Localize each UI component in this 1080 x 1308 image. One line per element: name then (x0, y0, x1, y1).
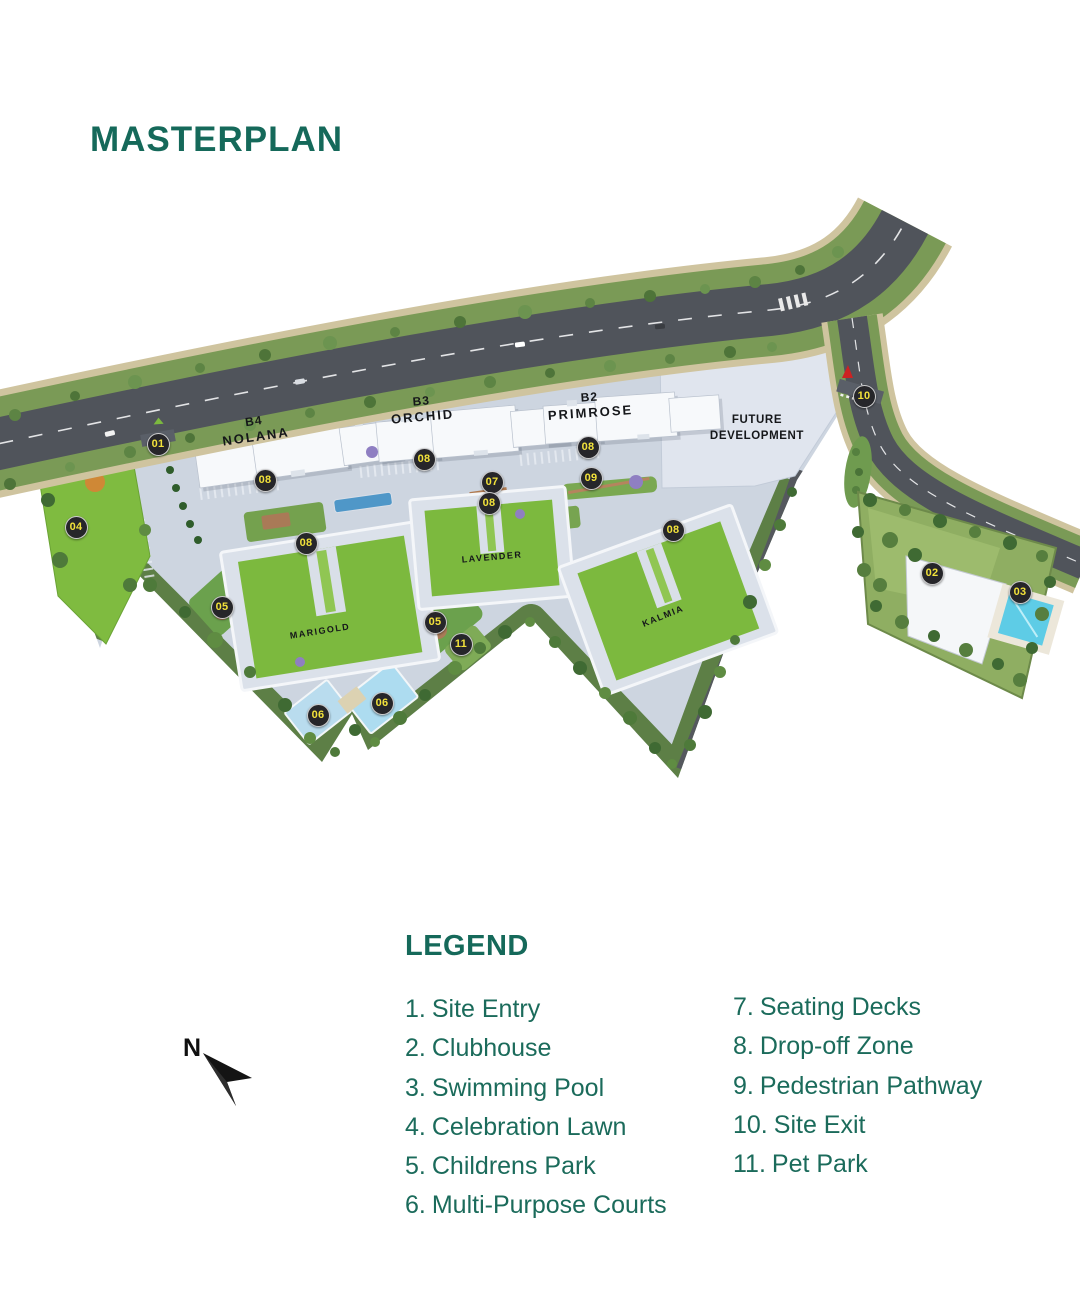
legend-item-number: 8. (733, 1032, 754, 1060)
map-marker-number: 08 (667, 524, 680, 536)
map-marker-06: 06 (371, 692, 394, 715)
legend-item: 2.Clubhouse (405, 1035, 667, 1061)
legend-item: 10.Site Exit (733, 1112, 982, 1138)
map-marker-number: 04 (70, 521, 83, 533)
legend-column-2: 7.Seating Decks8.Drop-off Zone9.Pedestri… (733, 994, 982, 1190)
legend-item: 3.Swimming Pool (405, 1075, 667, 1101)
legend-item: 1.Site Entry (405, 996, 667, 1022)
legend-item-label: Pedestrian Pathway (760, 1072, 982, 1100)
map-marker-11: 11 (450, 633, 473, 656)
compass-north-label: N (183, 1034, 201, 1063)
legend-item-number: 10. (733, 1111, 768, 1139)
north-arrow-icon (203, 1053, 252, 1106)
legend-item: 9.Pedestrian Pathway (733, 1073, 982, 1099)
legend-item: 6.Multi-Purpose Courts (405, 1192, 667, 1218)
map-marker-08: 08 (662, 519, 685, 542)
legend-item: 7.Seating Decks (733, 994, 982, 1020)
map-marker-08: 08 (295, 532, 318, 555)
map-marker-number: 03 (1014, 586, 1027, 598)
map-marker-number: 06 (376, 697, 389, 709)
legend-item-number: 3. (405, 1074, 426, 1102)
legend-column-1: 1.Site Entry2.Clubhouse3.Swimming Pool4.… (405, 996, 667, 1232)
map-marker-08: 08 (577, 436, 600, 459)
map-marker-08: 08 (478, 492, 501, 515)
map-marker-02: 02 (921, 562, 944, 585)
legend-item-label: Drop-off Zone (760, 1032, 914, 1060)
legend-item: 5.Childrens Park (405, 1153, 667, 1179)
legend-item-label: Celebration Lawn (432, 1113, 627, 1141)
map-marker-number: 08 (418, 453, 431, 465)
map-marker-08: 08 (254, 469, 277, 492)
map-marker-number: 10 (858, 390, 871, 402)
legend-item-number: 4. (405, 1113, 426, 1141)
map-marker-number: 11 (455, 638, 467, 650)
lawn-marigold (220, 521, 439, 691)
map-marker-number: 06 (312, 709, 325, 721)
legend-item-label: Seating Decks (760, 993, 921, 1021)
legend-item-label: Pet Park (772, 1150, 868, 1178)
map-marker-number: 08 (259, 474, 272, 486)
legend-item-label: Childrens Park (432, 1152, 596, 1180)
map-marker-05: 05 (424, 611, 447, 634)
map-marker-09: 09 (580, 467, 603, 490)
legend-item-label: Clubhouse (432, 1034, 552, 1062)
legend-item-label: Site Exit (774, 1111, 866, 1139)
legend-item: 4.Celebration Lawn (405, 1114, 667, 1140)
legend-item: 8.Drop-off Zone (733, 1033, 982, 1059)
map-marker-number: 02 (926, 567, 939, 579)
legend-item-number: 9. (733, 1072, 754, 1100)
legend-item-number: 1. (405, 995, 426, 1023)
map-marker-number: 08 (582, 441, 595, 453)
map-marker-10: 10 (853, 385, 876, 408)
legend-heading: LEGEND (405, 930, 529, 963)
map-marker-number: 05 (429, 616, 442, 628)
future-development-label: FUTURE DEVELOPMENT (692, 412, 822, 444)
map-marker-number: 07 (486, 476, 499, 488)
masterplan-page: MASTERPLAN (0, 0, 1080, 1308)
legend-item-number: 6. (405, 1191, 426, 1219)
map-marker-03: 03 (1009, 581, 1032, 604)
legend-item-label: Site Entry (432, 995, 540, 1023)
legend-item: 11.Pet Park (733, 1151, 982, 1177)
legend-item-number: 2. (405, 1034, 426, 1062)
map-marker-number: 01 (152, 438, 165, 450)
map-marker-01: 01 (147, 433, 170, 456)
map-marker-05: 05 (211, 596, 234, 619)
map-marker-07: 07 (481, 471, 504, 494)
legend-item-number: 7. (733, 993, 754, 1021)
map-marker-04: 04 (65, 516, 88, 539)
legend-item-number: 5. (405, 1152, 426, 1180)
map-marker-number: 08 (300, 537, 313, 549)
map-marker-number: 09 (585, 472, 598, 484)
legend-item-label: Swimming Pool (432, 1074, 604, 1102)
legend-item-label: Multi-Purpose Courts (432, 1191, 667, 1219)
legend-item-number: 11. (733, 1150, 766, 1178)
map-marker-06: 06 (307, 704, 330, 727)
map-marker-number: 08 (483, 497, 496, 509)
map-marker-number: 05 (216, 601, 229, 613)
map-marker-08: 08 (413, 448, 436, 471)
